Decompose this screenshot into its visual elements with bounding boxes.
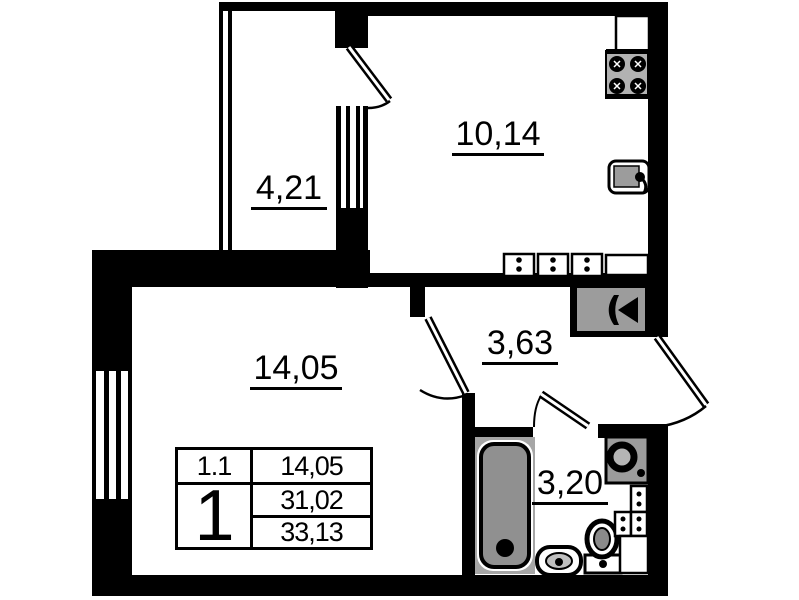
entry-door (657, 337, 706, 427)
left-wall-lower (92, 499, 132, 596)
partition-pillar-bottom (336, 208, 368, 288)
kitchen-sink-icon (609, 161, 649, 193)
living-room-right-wall (462, 393, 475, 578)
balcony-window-icon (336, 106, 368, 210)
kitchen-area-label: 10,14 (452, 117, 544, 156)
living-space-cell: 31,02 (253, 485, 370, 515)
unit-area-cell: 14,05 (253, 450, 370, 482)
kitchen-counter (616, 16, 649, 54)
kitchen-top-wall (345, 2, 668, 16)
hallway-area-label: 3,63 (482, 326, 558, 365)
living-room-window-icon (92, 371, 132, 499)
bathtub-icon (475, 437, 535, 574)
balcony-door (349, 47, 390, 108)
stove-icon (606, 49, 648, 99)
bathroom-wall-left (475, 427, 533, 438)
apartment-number-cell: 1 (178, 485, 250, 547)
apartment-info-table: 1.1 14,05 1 31,02 33,13 (175, 447, 373, 550)
bathroom-sink-icon (537, 547, 581, 575)
right-wall-lower (648, 427, 668, 596)
floor-plan: 4,21 10,14 14,05 3,63 3,20 1.1 14,05 1 3… (0, 0, 799, 600)
bottom-wall (92, 575, 668, 596)
balcony-left-wall-inner (228, 2, 232, 252)
living-room-area-label: 14,05 (250, 351, 342, 390)
living-room-door (420, 318, 466, 399)
washing-machine-icon (606, 437, 648, 483)
balcony-left-wall (219, 2, 223, 252)
floor-plan-drawing (0, 0, 799, 600)
total-area-cell: 33,13 (253, 518, 370, 547)
ventilation-shaft (570, 281, 668, 337)
kitchen-outlet-icons (504, 254, 648, 276)
bathroom-cabinet (620, 536, 648, 573)
bathroom-area-label: 3,20 (532, 466, 608, 505)
bathroom-door (534, 394, 588, 427)
living-room-top-wall (92, 250, 370, 287)
bathroom-outlet-icons (615, 486, 648, 573)
balcony-top-wall (219, 2, 345, 11)
kitchen-cabinet (606, 255, 648, 275)
hall-doorway-stub (410, 275, 425, 317)
balcony-area-label: 4,21 (251, 171, 327, 210)
partition-pillar-top (335, 11, 368, 48)
